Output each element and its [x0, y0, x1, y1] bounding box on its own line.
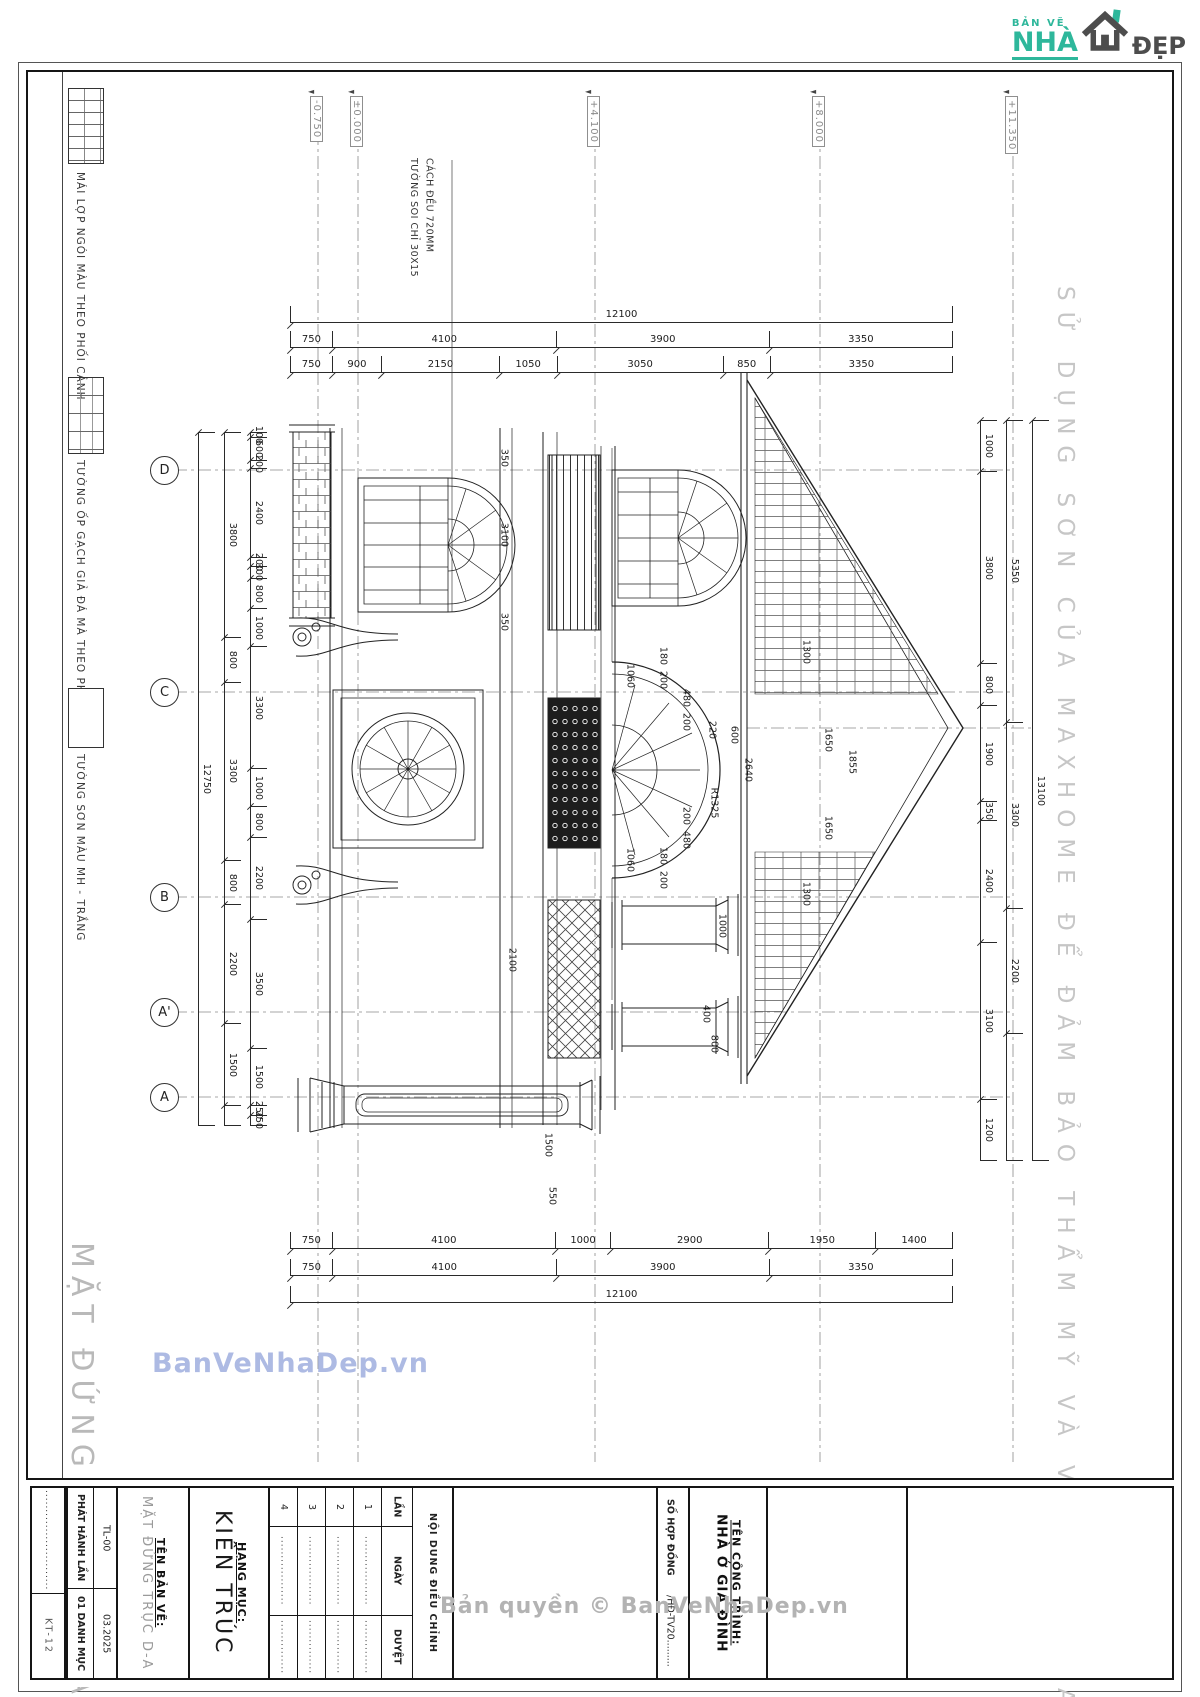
category-label: HẠNG MỤC:	[235, 1510, 248, 1655]
issue-date: 03.2025	[100, 1614, 111, 1653]
sheet-code: KT-12	[43, 1618, 54, 1654]
interior-dimension: 200	[658, 871, 669, 889]
interior-dimension: 1500	[543, 1133, 554, 1157]
material-note-paint: TƯỜNG SƠN MÀU MH - TRẮNG	[74, 754, 86, 941]
titleblock-empty-cell-1	[452, 1486, 658, 1680]
house-icon	[1080, 4, 1130, 60]
interior-dimension: 600	[729, 726, 740, 744]
watermark-copyright: Bản quyền © BanVeNhaDep.vn	[440, 1594, 849, 1619]
rev-row-2: 2	[334, 1504, 345, 1510]
code-dots: ..........................	[43, 1490, 53, 1590]
interior-dimension: 1060	[625, 664, 636, 688]
interior-dimension: 200	[658, 671, 669, 689]
interior-dimension: 400	[701, 1005, 712, 1023]
category-value: KIẾN TRÚC	[210, 1510, 235, 1655]
axis-bubble-B: B	[150, 883, 179, 912]
interior-dimension: 1060	[625, 848, 636, 872]
axis-bubble-A: A	[150, 1083, 179, 1112]
watermark-blue: BanVeNhaDep.vn	[152, 1348, 429, 1379]
elevation-drawing	[140, 70, 1060, 1480]
interior-dimension: 2100	[507, 948, 518, 972]
interior-dimension: 180	[658, 647, 669, 665]
titleblock-revision-table: 4 .................. .............. 3 ..…	[268, 1486, 454, 1680]
logo-text-nha: NHÀ	[1012, 29, 1078, 60]
rev-row-4: 4	[278, 1504, 289, 1510]
issue-number: TL-00	[100, 1525, 111, 1551]
rev-row-1: 1	[362, 1504, 373, 1510]
interior-dimension: 2640	[743, 758, 754, 782]
project-label: TÊN CÔNG TRÌNH:	[730, 1514, 743, 1652]
issue-category: 01 DANH MỤC	[75, 1596, 86, 1671]
issue-label: PHÁT HÀNH LẦN	[75, 1494, 86, 1581]
interior-dimension: 200	[681, 713, 692, 731]
swatch-paint	[68, 688, 104, 748]
titleblock-code-cell: .......................... KT-12	[30, 1486, 66, 1680]
drawing-name-value: MẶT ĐỨNG TRỤC D-A	[139, 1496, 154, 1670]
swatch-stone-cladding	[68, 377, 104, 454]
level-marker-arrow: ◄	[348, 88, 354, 96]
level-marker: +8.000	[812, 96, 825, 147]
interior-dimension: 550	[547, 1187, 558, 1205]
title-block: .......................... KT-12 PHÁT HÀ…	[26, 1478, 1174, 1687]
rev-dots: ..............	[307, 1620, 317, 1674]
logo-text-dep: ĐẸP	[1132, 34, 1186, 60]
interior-dimension: 180	[658, 847, 669, 865]
axis-bubble-C: C	[150, 678, 179, 707]
contract-label: SỐ HỢP ĐỒNG	[665, 1499, 676, 1576]
interior-dimension: 800	[709, 1035, 720, 1053]
level-marker: ±0.000	[350, 96, 363, 147]
rev-dots: ..................	[335, 1536, 345, 1606]
rev-col-ngay: NGÀY	[392, 1556, 403, 1585]
titleblock-drawing-name-cell: TÊN BẢN VẼ: MẶT ĐỨNG TRỤC D-A	[116, 1486, 190, 1680]
rev-dots: ..................	[307, 1536, 317, 1606]
rev-col-lan: LẦN	[392, 1496, 403, 1517]
interior-dimension: 1000	[717, 914, 728, 938]
titleblock-project-cell: TÊN CÔNG TRÌNH: NHÀ Ở GIA ĐÌNH	[688, 1486, 768, 1680]
level-marker-arrow: ◄	[810, 88, 816, 96]
drawing-name-label: TÊN BẢN VẼ:	[154, 1496, 167, 1670]
interior-dimension: 220	[707, 721, 718, 739]
rev-dots: ..............	[279, 1620, 289, 1674]
interior-dimension: 350	[499, 613, 510, 631]
project-value: NHÀ Ở GIA ĐÌNH	[714, 1514, 730, 1652]
level-marker: +11.350	[1005, 96, 1018, 154]
axis-bubble-D: D	[150, 456, 179, 485]
interior-dimension: 200	[681, 807, 692, 825]
rev-col-duyet: DUYỆT	[392, 1629, 403, 1664]
swatch-roof-tile	[68, 88, 104, 164]
level-marker-arrow: ◄	[585, 88, 591, 96]
level-marker: +4.100	[587, 96, 600, 147]
interior-dimension: 350	[499, 449, 510, 467]
interior-dimension: 1300	[801, 882, 812, 906]
titleblock-contract-cell: SỐ HỢP ĐỒNG /HĐ-TV20.........	[656, 1486, 690, 1680]
level-marker: -0.750	[310, 96, 323, 142]
rev-dots: ..................	[279, 1536, 289, 1606]
titleblock-empty-cell-2	[766, 1486, 908, 1680]
interior-dimension: 3100	[499, 523, 510, 547]
interior-dimension: 480	[681, 689, 692, 707]
interior-dimension: 1300	[801, 640, 812, 664]
level-marker-arrow: ◄	[308, 88, 314, 96]
rev-dots: ..............	[363, 1620, 373, 1674]
titleblock-empty-cell-3	[906, 1486, 1174, 1680]
margin-divider-line	[62, 72, 63, 1478]
interior-dimension: 1650	[823, 728, 834, 752]
titleblock-issue-cell: PHÁT HÀNH LẦN 01 DANH MỤC TL-00 03.2025	[66, 1486, 120, 1680]
interior-dimension: 480	[681, 831, 692, 849]
rev-title: NỘI DUNG ĐIỀU CHỈNH	[427, 1513, 438, 1653]
brand-logo: BẢN VẼ NHÀ ĐẸP	[1012, 4, 1186, 60]
interior-dimension: R1325	[709, 788, 720, 819]
titleblock-category-cell: HẠNG MỤC: KIẾN TRÚC	[188, 1486, 270, 1680]
axis-bubble-Ap: A'	[150, 998, 179, 1027]
rev-dots: ..............	[335, 1620, 345, 1674]
level-marker-arrow: ◄	[1003, 88, 1009, 96]
interior-dimension: 1650	[823, 816, 834, 840]
rev-row-3: 3	[306, 1504, 317, 1510]
drawing-sheet: BẢN VẼ NHÀ ĐẸP MÁI LỢP NGÓI MÀU THEO PHỐ…	[0, 0, 1200, 1697]
interior-dimension: 1855	[847, 750, 858, 774]
material-note-roof: MÁI LỢP NGÓI MÀU THEO PHỐI CẢNH	[74, 172, 86, 400]
rev-dots: ..................	[363, 1536, 373, 1606]
